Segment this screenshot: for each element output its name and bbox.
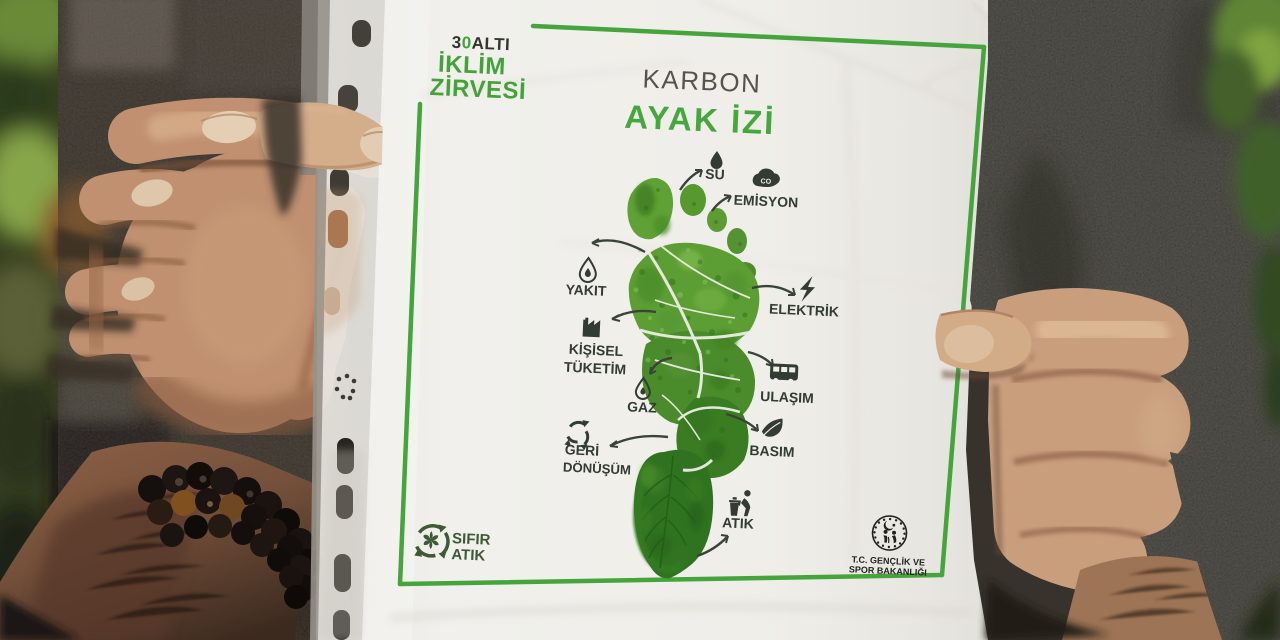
svg-text:KİŞİSEL: KİŞİSEL [568, 341, 624, 359]
svg-text:ATIK: ATIK [451, 546, 486, 564]
svg-text:CO: CO [760, 178, 771, 185]
svg-text:SU: SU [705, 166, 725, 183]
svg-text:BASIM: BASIM [749, 442, 795, 460]
svg-text:GAZ: GAZ [627, 398, 658, 415]
svg-text:YAKIT: YAKIT [565, 281, 607, 299]
svg-text:ULAŞIM: ULAŞIM [760, 388, 814, 406]
svg-text:GERİ: GERİ [565, 441, 600, 458]
svg-text:AYAK İZİ: AYAK İZİ [624, 98, 777, 142]
svg-text:ELEKTRİK: ELEKTRİK [769, 300, 840, 319]
svg-text:TÜKETİM: TÜKETİM [564, 359, 627, 378]
svg-text:ZİRVESİ: ZİRVESİ [429, 74, 527, 105]
svg-text:DÖNÜŞÜM: DÖNÜŞÜM [563, 460, 632, 478]
svg-text:ATIK: ATIK [722, 514, 754, 531]
svg-text:KARBON: KARBON [642, 63, 762, 98]
svg-text:EMİSYON: EMİSYON [733, 192, 798, 211]
